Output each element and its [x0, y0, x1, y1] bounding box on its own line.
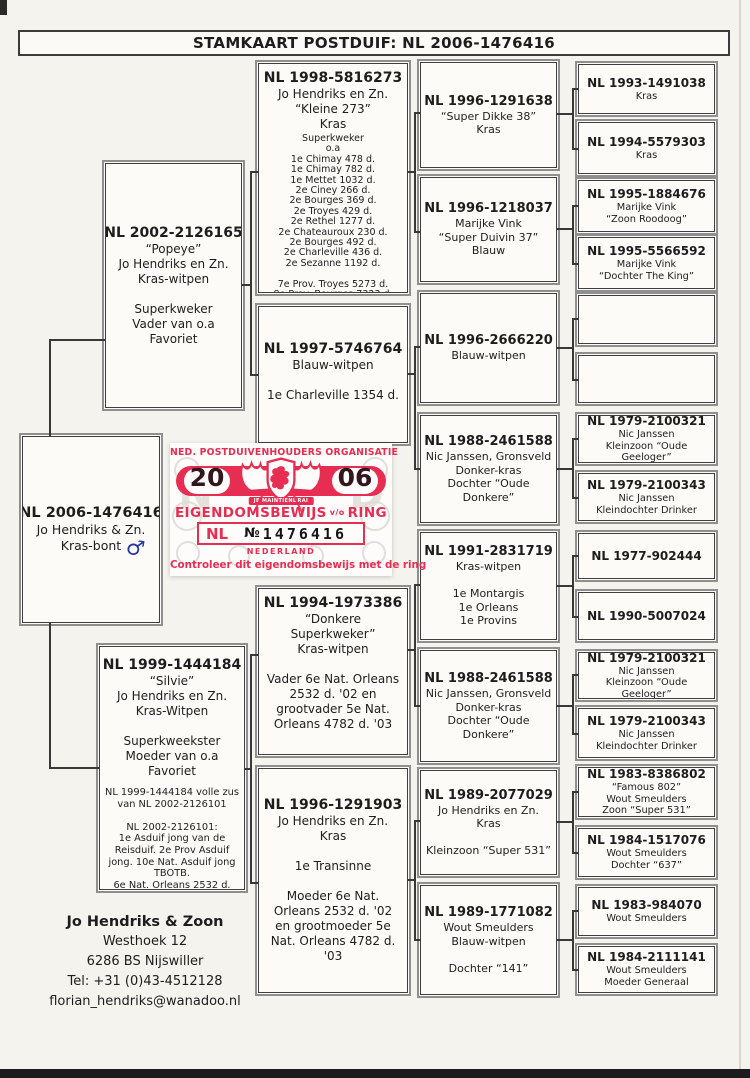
box-details: Nic Janssen, Gronsveld Donker-kras Docht…: [424, 450, 553, 504]
pedigree-box-gggparent-16: NL 1984-2111141 Wout Smeulders Moeder Ge…: [578, 946, 715, 993]
pedigree-box-gggparent-4: NL 1995-5566592 Marijke Vink “Dochter Th…: [578, 237, 715, 289]
ring-number: NL 1979-2100321: [587, 652, 706, 666]
ring-number: NL 1996-2666220: [424, 333, 553, 349]
pedigree-box-sire: NL 2002-2126165 “Popeye” Jo Hendriks en …: [105, 163, 242, 408]
ring-number: NL 1984-1517076: [587, 833, 706, 848]
pedigree-box-ggparent-6: NL 1988-2461588 Nic Janssen, Gronsveld D…: [420, 650, 557, 762]
pedigree-box-gggparent-12: NL 1979-2100343 Nic Janssen Kleindochter…: [578, 708, 715, 758]
box-details: Nic Janssen Kleindochter Drinker: [596, 729, 697, 752]
box-details: Nic Janssen Kleindochter Drinker: [596, 493, 697, 516]
box-details: Wout Smeulders Dochter “637”: [606, 848, 686, 871]
pedigree-connector: [557, 228, 572, 230]
ring-number: NL 1979-2100343: [587, 478, 706, 493]
pedigree-connector: [414, 112, 420, 233]
ring-number: NL 1999-1444184: [103, 657, 241, 674]
ring-number: NL 1995-1884676: [587, 187, 706, 202]
box-details: Wout Smeulders: [606, 913, 686, 925]
ring-number: NL 2002-2126165: [105, 225, 242, 242]
pedigree-box-gggparent-7: NL 1979-2100321 Nic Janssen Kleinzoon “O…: [578, 415, 715, 463]
scan-artifact-corner: [0, 0, 7, 15]
pedigree-box-gggparent-6: [578, 355, 715, 403]
box-details: Nic Janssen Kleinzoon “Oude Geeloger”: [582, 666, 711, 699]
pedigree-connector: [557, 468, 572, 470]
male-symbol-icon: ♂: [125, 535, 147, 561]
pedigree-box-grandsire-maternal: NL 1994-1973386 “Donkere Superkweker” Kr…: [258, 588, 408, 755]
box-details: Marijke Vink “Super Duivin 37” Blauw: [439, 217, 539, 258]
stamkaart-scan: STAMKAART POSTDUIF: NL 2006-1476416 NL 2…: [0, 0, 750, 1078]
certificate-year-band: 20 06 JE MAINTIENDRAI: [170, 459, 392, 503]
pedigree-box-ggparent-7: NL 1989-2077029 Jo Hendriks en Zn. Kras …: [420, 770, 557, 875]
owner-phone: Tel: +31 (0)43-4512128: [20, 972, 270, 992]
box-details: Kras: [636, 150, 658, 162]
pedigree-box-ggparent-3: NL 1996-2666220 Blauw-witpen: [420, 293, 557, 403]
pedigree-connector: [572, 438, 578, 499]
ring-number: NL 1996-1291903: [264, 797, 402, 814]
pedigree-box-gggparent-8: NL 1979-2100343 Nic Janssen Kleindochter…: [578, 473, 715, 521]
pedigree-connector: [414, 820, 420, 941]
box-details: Blauw-witpen 1e Charleville 1354 d.: [267, 358, 399, 403]
box-details: Marijke Vink “Dochter The King”: [599, 259, 694, 282]
ring-number: NL 1996-1291638: [424, 94, 553, 110]
pedigree-box-subject: NL 2006-1476416 Jo Hendriks & Zn. Kras-b…: [22, 436, 160, 623]
pedigree-connector: [557, 821, 572, 823]
pedigree-connector: [572, 318, 578, 381]
box-details: Nic Janssen, Gronsveld Donker-kras Docht…: [424, 687, 553, 741]
box-details: Blauw-witpen: [451, 349, 525, 363]
pedigree-box-gggparent-13: NL 1983-8386802 “Famous 802” Wout Smeuld…: [578, 767, 715, 817]
pedigree-connector: [572, 674, 578, 735]
ring-number: NL 1989-2077029: [424, 788, 553, 804]
ring-number: NL 1979-2100343: [587, 714, 706, 729]
pedigree-connector: [557, 347, 572, 349]
ring-number: NL 1988-2461588: [424, 434, 553, 450]
ring-number: NL 1983-8386802: [587, 767, 706, 782]
box-results: NL 1999-1444184 volle zus van NL 2002-21…: [105, 787, 239, 890]
owner-email: florian_hendriks@wanadoo.nl: [20, 992, 270, 1012]
pedigree-connector: [250, 171, 258, 376]
ring-number: NL 1996-1218037: [424, 201, 553, 217]
box-details: “Super Dikke 38” Kras: [441, 110, 536, 137]
box-details: Jo Hendriks en Zn. Kras 1e Transinne Moe…: [271, 814, 396, 964]
pedigree-box-gggparent-9: NL 1977-902444: [578, 533, 715, 579]
ring-number: NL 1988-2461588: [424, 671, 553, 687]
box-details: Wout Smeulders Moeder Generaal: [604, 965, 688, 988]
box-details: Jo Hendriks en Zn. Kras Kleinzoon “Super…: [426, 804, 551, 858]
ring-number: NL 1989-1771082: [424, 905, 553, 921]
pedigree-connector: [250, 654, 258, 884]
year-right: 06: [332, 463, 378, 492]
pedigree-connector: [242, 284, 250, 286]
ring-number: NL 1995-5566592: [587, 244, 706, 259]
pedigree-box-granddam-maternal: NL 1996-1291903 Jo Hendriks en Zn. Kras …: [258, 768, 408, 993]
owner-city: 6286 BS Nijswiller: [20, 952, 270, 972]
box-details: “Famous 802” Wout Smeulders Zoon “Super …: [602, 782, 691, 817]
pedigree-box-ggparent-1: NL 1996-1291638 “Super Dikke 38” Kras: [420, 62, 557, 168]
ring-number: NL 1990-5007024: [587, 609, 706, 624]
box-details: Kras: [636, 91, 658, 103]
ring-number: NL 1997-5746764: [264, 341, 402, 358]
pedigree-box-ggparent-2: NL 1996-1218037 Marijke Vink “Super Duiv…: [420, 177, 557, 282]
box-details: “Donkere Superkweker” Kras-witpen Vader …: [262, 612, 404, 732]
ownership-certificate-stamp: N D NED. POSTDUIVENHOUDERS ORGANISATIE 2…: [170, 443, 392, 576]
box-details: “Silvie” Jo Hendriks en Zn. Kras-Witpen …: [117, 674, 227, 779]
pedigree-connector: [572, 205, 578, 265]
pedigree-connector: [572, 555, 578, 618]
pedigree-box-ggparent-4: NL 1988-2461588 Nic Janssen, Gronsveld D…: [420, 415, 557, 523]
scan-artifact-edge: [739, 0, 741, 1078]
pedigree-box-grandsire-paternal: NL 1998-5816273 Jo Hendriks en Zn. “Klei…: [258, 63, 408, 293]
certificate-country: NEDERLAND: [170, 547, 392, 556]
pedigree-connector: [572, 88, 578, 150]
box-details: Wout Smeulders Blauw-witpen Dochter “141…: [443, 921, 533, 975]
box-details: Marijke Vink “Zoon Roodoog”: [606, 202, 687, 225]
pedigree-box-gggparent-3: NL 1995-1884676 Marijke Vink “Zoon Roodo…: [578, 180, 715, 232]
owner-contact-block: Jo Hendriks & Zoon Westhoek 12 6286 BS N…: [20, 912, 270, 1012]
pedigree-connector: [557, 939, 572, 941]
certificate-title-abbr: v/o: [330, 508, 345, 517]
certificate-title-end: RING: [348, 505, 387, 521]
pedigree-connector: [557, 585, 572, 587]
pedigree-connector: [49, 339, 105, 436]
ring-number: NL 1979-2100321: [587, 415, 706, 429]
owner-name: Jo Hendriks & Zoon: [20, 912, 270, 932]
pedigree-box-ggparent-8: NL 1989-1771082 Wout Smeulders Blauw-wit…: [420, 885, 557, 995]
pedigree-connector: [414, 346, 420, 470]
certificate-ring-number-box: NL № 1476416: [197, 522, 365, 545]
ring-number: NL 2006-1476416: [22, 505, 160, 522]
pedigree-box-gggparent-15: NL 1983-984070 Wout Smeulders: [578, 887, 715, 936]
ring-number: NL 1983-984070: [591, 898, 701, 913]
box-details: Jo Hendriks en Zn. “Kleine 273” Kras: [278, 87, 388, 132]
ring-number: NL 1991-2831719: [424, 544, 553, 560]
pedigree-box-granddam-paternal: NL 1997-5746764 Blauw-witpen 1e Charlevi…: [258, 306, 408, 443]
pedigree-connector: [572, 910, 578, 971]
pedigree-box-gggparent-5: [578, 295, 715, 344]
certificate-title: EIGENDOMSBEWIJS v/o RING: [170, 505, 392, 521]
certificate-ring-number: 1476416: [263, 525, 347, 543]
ring-number: NL 1994-1973386: [264, 595, 402, 612]
pedigree-box-gggparent-1: NL 1993-1491038 Kras: [578, 64, 715, 114]
pedigree-box-ggparent-5: NL 1991-2831719 Kras-witpen 1e Montargis…: [420, 532, 557, 640]
ring-number: NL 1977-902444: [591, 549, 701, 564]
ring-number: NL 1993-1491038: [587, 76, 706, 91]
box-results: Superkweker o.a 1e Chimay 478 d. 1e Chim…: [270, 134, 395, 293]
year-left: 20: [184, 463, 230, 492]
pedigree-connector: [557, 113, 572, 115]
box-details: Nic Janssen Kleinzoon “Oude Geeloger”: [582, 429, 711, 463]
ring-number: NL 1984-2111141: [587, 950, 706, 965]
pedigree-connector: [557, 705, 572, 707]
pedigree-box-gggparent-14: NL 1984-1517076 Wout Smeulders Dochter “…: [578, 828, 715, 877]
ring-number: NL 1998-5816273: [264, 70, 402, 87]
pedigree-box-gggparent-11: NL 1979-2100321 Nic Janssen Kleinzoon “O…: [578, 652, 715, 699]
ring-number: NL 1994-5579303: [587, 135, 706, 150]
number-sign: №: [244, 526, 260, 541]
box-details: “Popeye” Jo Hendriks en Zn. Kras-witpen …: [118, 242, 228, 347]
certificate-title-main: EIGENDOMSBEWIJS: [175, 505, 327, 521]
pedigree-connector: [572, 791, 578, 854]
certificate-footer: Controleer dit eigendomsbewijs met de ri…: [170, 559, 392, 571]
owner-street: Westhoek 12: [20, 932, 270, 952]
page-title: STAMKAART POSTDUIF: NL 2006-1476416: [18, 30, 730, 56]
pedigree-box-gggparent-10: NL 1990-5007024: [578, 592, 715, 640]
pedigree-connector: [49, 623, 99, 769]
pedigree-box-dam: NL 1999-1444184 “Silvie” Jo Hendriks en …: [99, 646, 245, 890]
box-details: Kras-witpen 1e Montargis 1e Orleans 1e P…: [453, 560, 525, 628]
pedigree-connector: [414, 584, 420, 707]
certificate-country-code: NL: [206, 525, 228, 543]
pedigree-box-gggparent-2: NL 1994-5579303 Kras: [578, 122, 715, 174]
scan-artifact-bottom-bar: [0, 1069, 750, 1078]
